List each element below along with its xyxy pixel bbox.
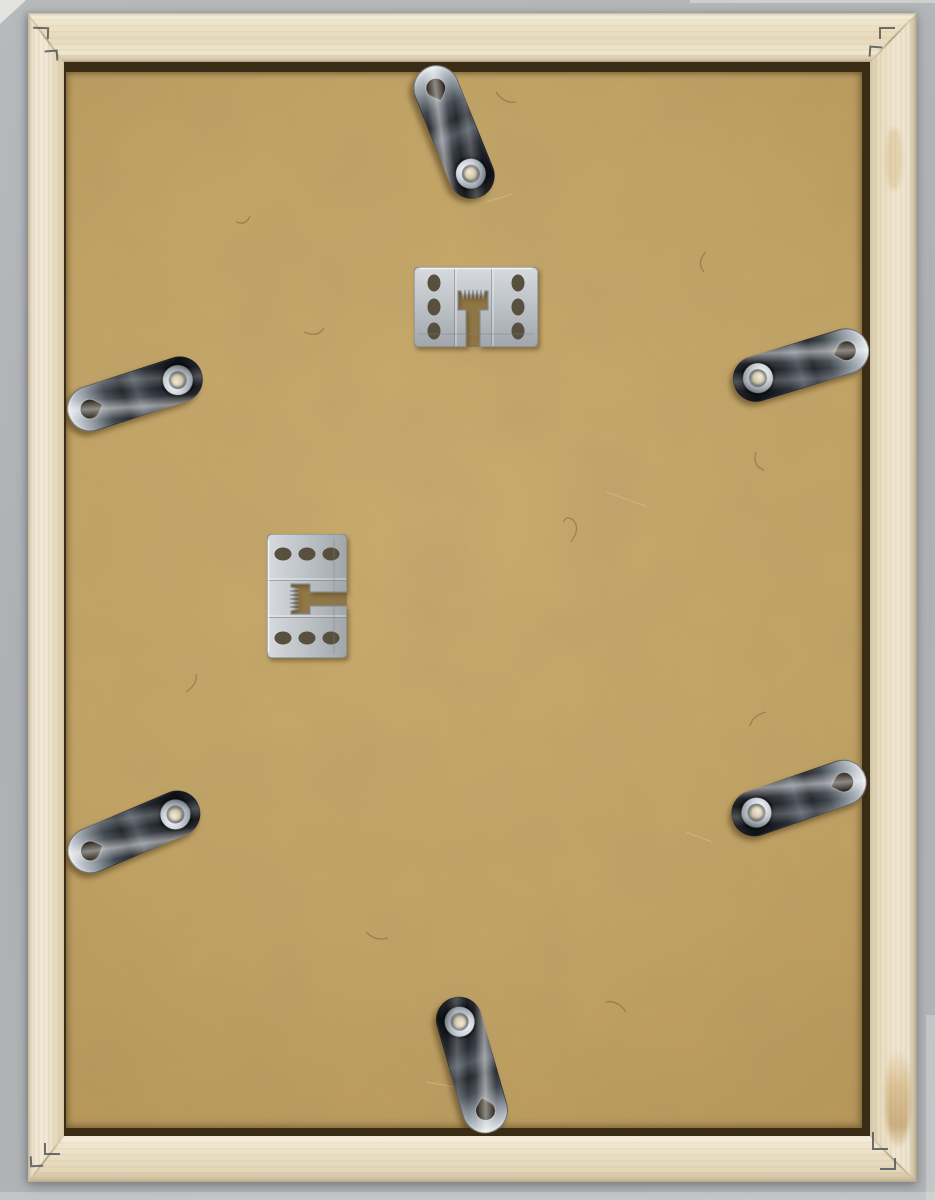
screw-washer [451,154,490,193]
screw-washer [441,1003,478,1040]
v-nail-mark [879,27,895,39]
wood-rail-left [28,13,64,1182]
glue-stain [886,1048,910,1146]
screw-washer [156,794,195,833]
screw-head [749,369,766,386]
photo-edge-artifact [0,1192,935,1200]
screw-head [166,805,184,823]
sawtooth-hanger-lower [267,534,347,658]
screw-head [462,164,480,182]
screw-head [451,1013,468,1030]
sawtooth-hanger-upper [414,267,538,347]
photo-of-frame-back [0,0,935,1200]
teardrop-hole [423,75,448,100]
photo-edge-artifact [690,0,935,3]
teardrop-hole [833,338,859,364]
wood-rail-top [28,13,917,62]
teardrop-hole [77,396,103,422]
frame-rebate-recess [64,62,870,1136]
mdf-backing-board [66,72,862,1128]
v-nail-mark [869,46,883,58]
screw-washer [739,359,776,396]
glue-stain [886,128,902,190]
screw-washer [158,361,196,399]
mdf-fiber-texture [66,72,862,1128]
v-nail-mark [33,27,49,40]
v-nail-mark [45,50,59,62]
teardrop-hole [78,838,103,863]
screw-head [168,371,186,389]
v-nail-mark [30,1156,44,1168]
v-nail-mark [44,1143,60,1155]
screw-head [747,803,765,821]
wood-rail-bottom [28,1136,917,1182]
screw-washer [737,793,775,831]
v-nail-mark [872,1132,888,1150]
teardrop-hole [473,1098,499,1124]
teardrop-hole [831,769,856,794]
photo-edge-artifact [926,1015,935,1200]
v-nail-mark [880,1158,896,1170]
